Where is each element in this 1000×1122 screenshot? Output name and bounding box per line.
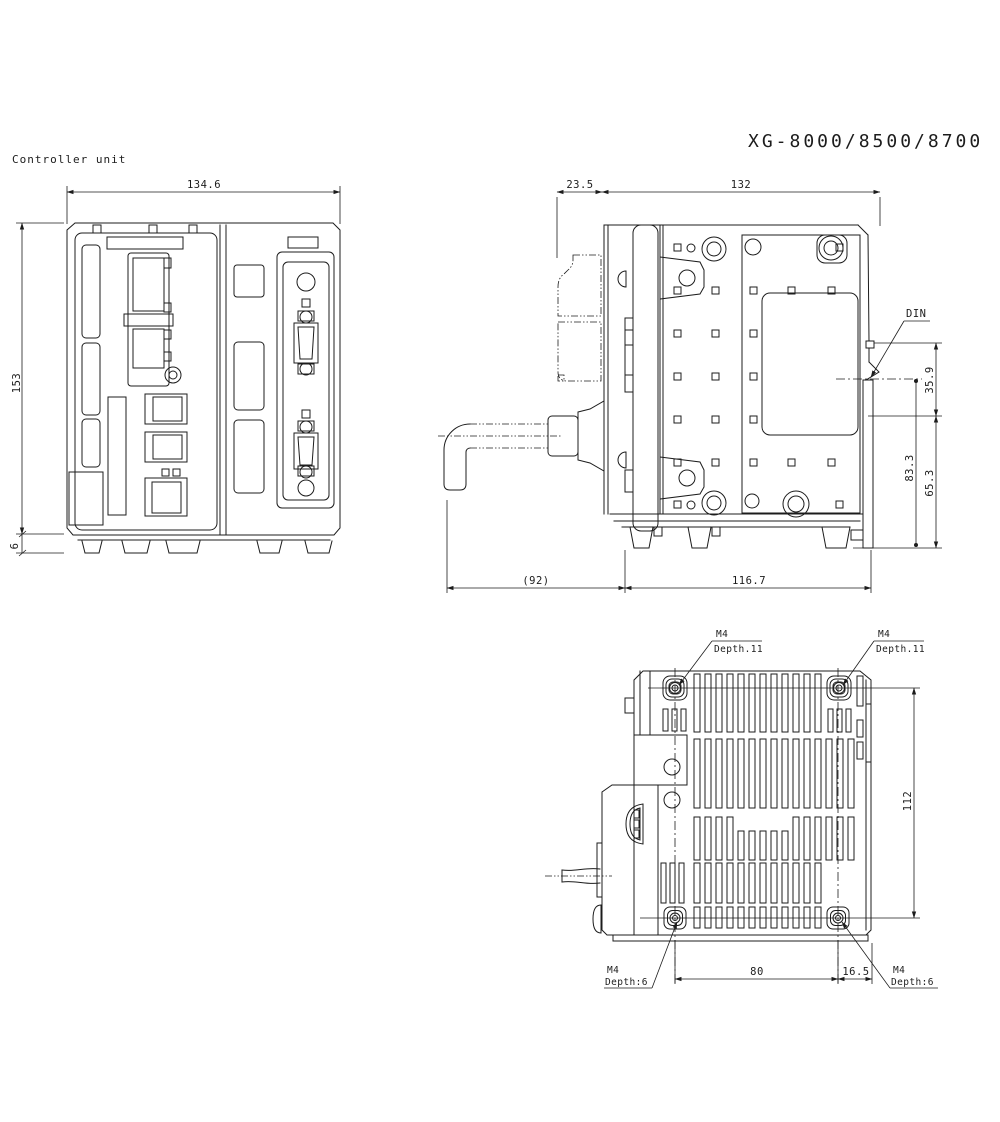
din-latch-bar — [863, 380, 873, 548]
screw-callout-br-thread: M4 — [893, 965, 905, 976]
connector-recess — [634, 735, 687, 785]
din-callout: DIN — [906, 308, 926, 320]
dim-front-width: 134.6 — [187, 179, 221, 191]
dim-din-to-bottom: 83.3 — [904, 454, 916, 481]
front-button-stack — [145, 394, 187, 516]
dim-side-body-depth: 132 — [731, 179, 751, 191]
front-bezel-edge — [633, 225, 658, 531]
dim-front-height: 153 — [11, 373, 23, 393]
phantom-connector-outlines — [558, 255, 601, 381]
screw-callout-br-depth: Depth:6 — [891, 977, 934, 988]
screw-callout-tr-thread: M4 — [878, 629, 890, 640]
dim-screw-vertical-pitch: 112 — [902, 791, 914, 811]
side-view: 23.5 132 DIN 35.9 65.3 83.3 (92) — [438, 179, 942, 593]
eject-button — [165, 367, 181, 383]
screw-callout-bl-thread: M4 — [607, 965, 619, 976]
page-title: XG-8000/8500/8700 — [748, 131, 983, 152]
rear-inner-panel — [742, 235, 860, 513]
camera-cable — [438, 401, 604, 490]
cable-connector — [626, 804, 643, 844]
screw-callout-tl-depth: Depth.11 — [714, 644, 763, 655]
vent-slot — [82, 343, 100, 415]
technical-drawing-page: Controller unit XG-8000/8500/8700 — [0, 0, 1000, 1122]
dim-mount-depth: 116.7 — [732, 575, 766, 587]
dsub-connector-lower — [294, 421, 318, 478]
dim-side-front-depth: 23.5 — [566, 179, 593, 191]
vent-slot — [82, 419, 100, 467]
din-mount-plate — [762, 293, 858, 435]
expansion-section — [234, 237, 334, 508]
front-view: 134.6 153 6 — [9, 179, 340, 556]
dsub-connector-upper — [294, 311, 318, 375]
cable-unit-block — [602, 785, 658, 935]
product-label: Controller unit — [12, 153, 126, 166]
dim-cable: (92) — [522, 575, 549, 587]
heat-sink-fins — [661, 674, 863, 928]
card-slot-assembly — [124, 253, 181, 386]
dim-screw-horizontal-pitch: 80 — [750, 966, 764, 978]
dim-din-to-top: 35.9 — [924, 366, 936, 393]
nameplate-strip — [107, 237, 183, 249]
screw-callout-tl-thread: M4 — [716, 629, 728, 640]
dim-screw-to-edge: 16.5 — [842, 966, 869, 978]
front-panel-bezel — [75, 233, 217, 530]
screw-callout-bl-depth: Depth:6 — [605, 977, 648, 988]
bottom-view: M4 Depth.11 M4 Depth.11 112 80 16.5 M4 D… — [545, 629, 938, 988]
vent-strip — [108, 397, 126, 515]
vent-slot — [82, 245, 100, 338]
lower-left-block — [69, 472, 103, 525]
screw-callout-tr-depth: Depth.11 — [876, 644, 925, 655]
drawing-sheet: Controller unit XG-8000/8500/8700 — [0, 0, 1000, 1122]
dim-lower-section: 65.3 — [924, 469, 936, 496]
dim-front-foot: 6 — [9, 543, 21, 550]
side-vent-holes — [674, 244, 843, 509]
